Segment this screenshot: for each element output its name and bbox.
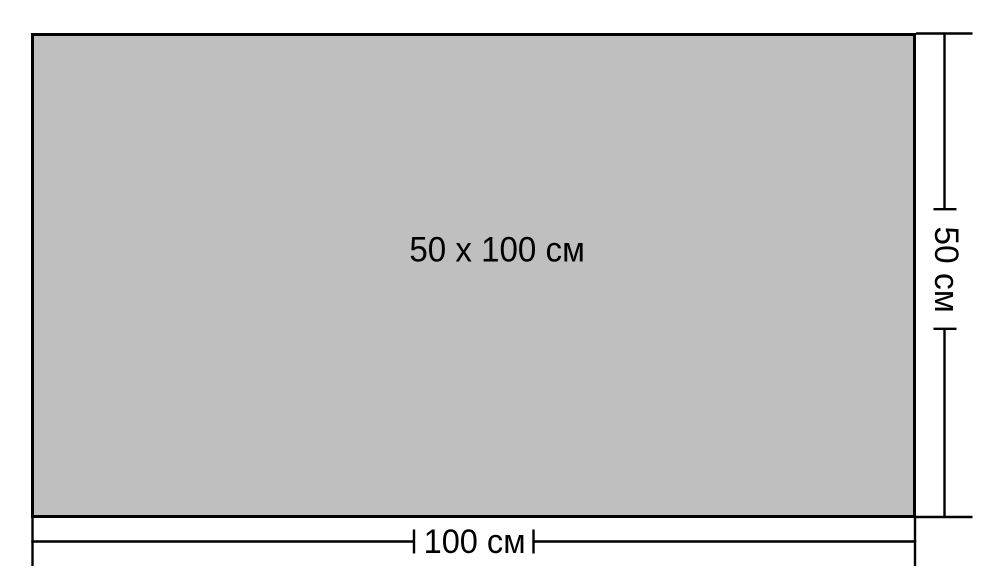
svg-text:100 см: 100 см — [424, 523, 526, 561]
svg-text:50 см: 50 см — [927, 226, 965, 313]
svg-text:50 x 100 см: 50 x 100 см — [409, 231, 585, 270]
